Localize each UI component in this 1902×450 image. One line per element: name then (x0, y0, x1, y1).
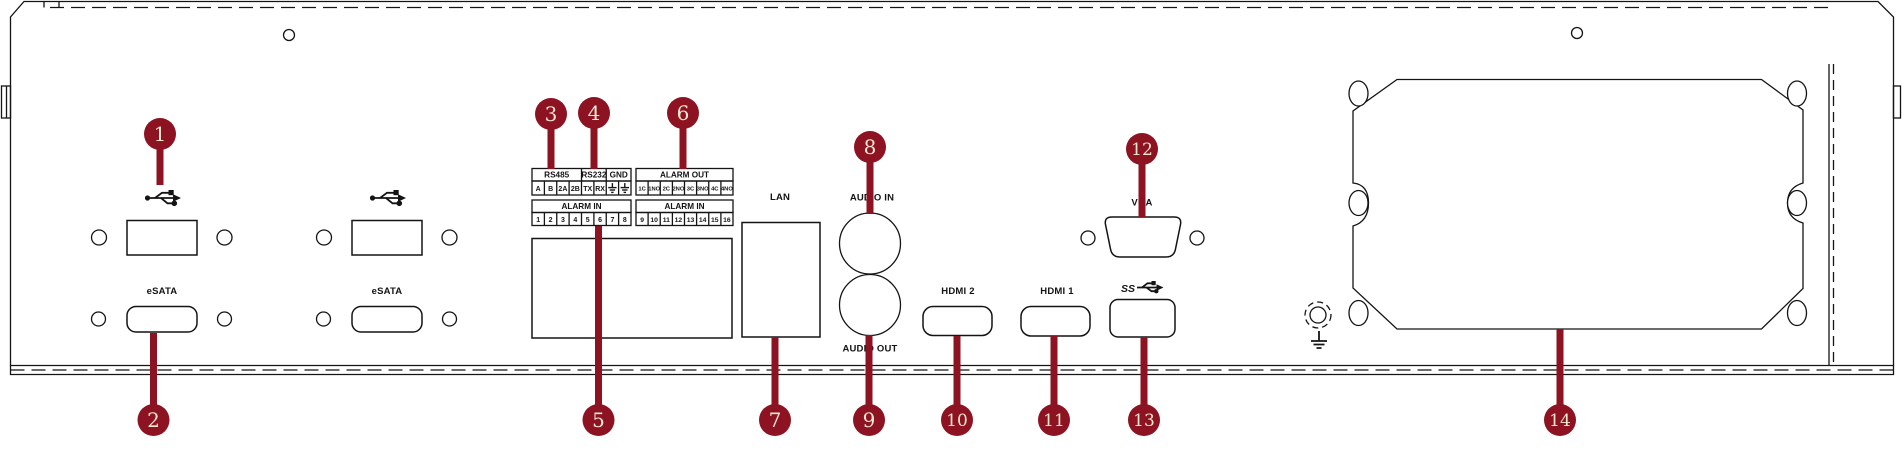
pin-label: A (536, 186, 541, 193)
callout-13: 13 (1128, 337, 1160, 436)
screw-hole (317, 312, 331, 326)
panel-screw-slot (1788, 81, 1807, 106)
terminal-connector-socket (532, 239, 732, 339)
pin-label: 10 (650, 217, 658, 224)
pin-label: 4C (711, 186, 719, 192)
pin-label: 12 (675, 217, 683, 224)
callout-number: 13 (1133, 411, 1155, 431)
audio-group: AUDIO IN AUDIO OUT (840, 193, 901, 355)
usb-port (352, 221, 422, 256)
screw-hole (218, 312, 232, 326)
callout-number: 1 (154, 122, 167, 146)
callouts: 1 2 3 4 5 6 7 8 (138, 97, 1577, 436)
screw-hole (443, 312, 457, 326)
callout-number: 6 (677, 101, 690, 125)
gnd-label: GND (610, 171, 628, 180)
pin-label: 4 (573, 217, 577, 224)
chassis-top-tab (44, 2, 59, 8)
pin-label: 3 (561, 217, 565, 224)
screw-hole (1572, 28, 1583, 39)
screw-hole (92, 312, 106, 326)
callout-number: 3 (545, 102, 558, 126)
screw-hole (317, 230, 332, 245)
grounding-terminal (1305, 302, 1331, 348)
alarm-in-header: ALARM IN (664, 202, 704, 211)
lan-group: LAN (742, 192, 820, 337)
usb3-ss-icon: SS (1121, 281, 1164, 295)
usb-esata-group-1: eSATA (92, 190, 233, 332)
pin-label: 6 (598, 217, 602, 224)
rs232-label: RS232 (581, 171, 606, 180)
screw-hole (1081, 231, 1095, 245)
earth-ground-icon (1311, 331, 1327, 348)
rear-panel-diagram: eSATA eSATA RS485 RS232 GND A B 2A 2B TX… (0, 0, 1902, 450)
lan-port (742, 223, 820, 338)
pin-label: 3C (687, 186, 695, 192)
pin-label: 5 (586, 217, 590, 224)
esata-port (127, 307, 197, 333)
audio-in-jack (840, 213, 901, 274)
panel-screw-slot (1349, 191, 1368, 216)
callout-number: 8 (864, 135, 877, 159)
hdmi1-group: HDMI 1 (1021, 286, 1090, 336)
callout-7: 7 (759, 337, 791, 436)
pin-label: 9 (640, 217, 644, 224)
rs485-label: RS485 (544, 171, 569, 180)
vga-port (1105, 217, 1180, 257)
usb3-group: SS (1110, 281, 1175, 337)
usb-esata-group-2: eSATA (317, 190, 458, 332)
right-mount-tab (1894, 86, 1901, 118)
hdmi2-group: HDMI 2 (923, 286, 992, 336)
callout-1: 1 (144, 118, 176, 185)
callout-6: 6 (667, 97, 699, 169)
alarm-out-header: ALARM OUT (660, 171, 709, 180)
hdmi1-label: HDMI 1 (1040, 286, 1074, 297)
pin-label: 2C (663, 186, 671, 192)
screw-hole (217, 230, 232, 245)
callout-number: 2 (147, 408, 160, 432)
pin-label: 3NO (697, 186, 709, 192)
serial-alarm-terminal-block: RS485 RS232 GND A B 2A 2B TX RX ALARM IN… (532, 169, 631, 226)
pin-label: 4NO (721, 186, 733, 192)
callout-number: 12 (1131, 140, 1153, 160)
esata-label: eSATA (372, 286, 403, 297)
alarm-in-header: ALARM IN (561, 202, 601, 211)
pin-label: 1NO (648, 186, 660, 192)
pin-label: 13 (687, 217, 695, 224)
pin-label: 2NO (672, 186, 684, 192)
pin-label: 2A (558, 186, 567, 193)
pin-label: 7 (610, 217, 614, 224)
callout-3: 3 (535, 98, 567, 169)
power-panel-cutout (1349, 80, 1807, 330)
screw-hole (442, 230, 457, 245)
callout-10: 10 (941, 336, 973, 436)
callout-number: 4 (588, 101, 601, 125)
callout-number: 7 (769, 408, 782, 432)
pin-label: TX (583, 186, 592, 193)
callout-14: 14 (1544, 329, 1576, 436)
earth-ground-icon (621, 183, 629, 192)
pin-label: 15 (711, 217, 719, 224)
pin-label: 16 (723, 217, 731, 224)
earth-ground-icon (608, 183, 616, 192)
hdmi1-port (1021, 307, 1090, 337)
panel-outline (1353, 80, 1803, 330)
usb-icon (370, 190, 406, 206)
esata-label: eSATA (147, 286, 178, 297)
callout-number: 5 (592, 408, 605, 432)
usb-icon (145, 190, 181, 206)
usb3-trident-square (1152, 281, 1156, 285)
callout-11: 11 (1038, 336, 1070, 436)
ground-screw (1310, 307, 1326, 323)
callout-2: 2 (138, 333, 170, 436)
pin-label: 2 (549, 217, 553, 224)
ss-label: SS (1121, 283, 1135, 295)
pin-label: 2B (571, 186, 580, 193)
pin-label: 1 (536, 217, 540, 224)
audio-out-jack (840, 275, 901, 336)
rear-panel-svg: eSATA eSATA RS485 RS232 GND A B 2A 2B TX… (0, 0, 1902, 450)
callout-number: 10 (946, 411, 968, 431)
callout-number: 11 (1043, 411, 1065, 431)
screw-hole (1190, 231, 1204, 245)
callout-number: 14 (1549, 411, 1571, 431)
usb3-trident-dot (1154, 289, 1158, 293)
panel-screw-slot (1788, 191, 1807, 216)
pin-label: 14 (699, 217, 707, 224)
pin-label: RX (595, 186, 605, 193)
lan-label: LAN (770, 192, 790, 203)
pin-label: 1C (638, 186, 646, 192)
callout-4: 4 (578, 97, 610, 169)
callout-number: 9 (863, 408, 876, 432)
pin-label: B (548, 186, 553, 193)
panel-screw-slot (1349, 301, 1368, 326)
screw-hole (92, 230, 107, 245)
panel-screw-slot (1349, 81, 1368, 106)
panel-screw-slot (1788, 301, 1807, 326)
screw-hole (284, 30, 295, 41)
pin-label: 11 (663, 217, 670, 224)
usb3-port (1110, 300, 1175, 338)
esata-port (352, 307, 422, 333)
hdmi2-label: HDMI 2 (941, 286, 974, 297)
usb-port (127, 221, 197, 256)
hdmi2-port (923, 307, 992, 336)
pin-label: 8 (623, 217, 627, 224)
alarm-terminal-block: ALARM OUT 1C 1NO 2C 2NO 3C 3NO 4C 4NO AL… (532, 169, 733, 339)
